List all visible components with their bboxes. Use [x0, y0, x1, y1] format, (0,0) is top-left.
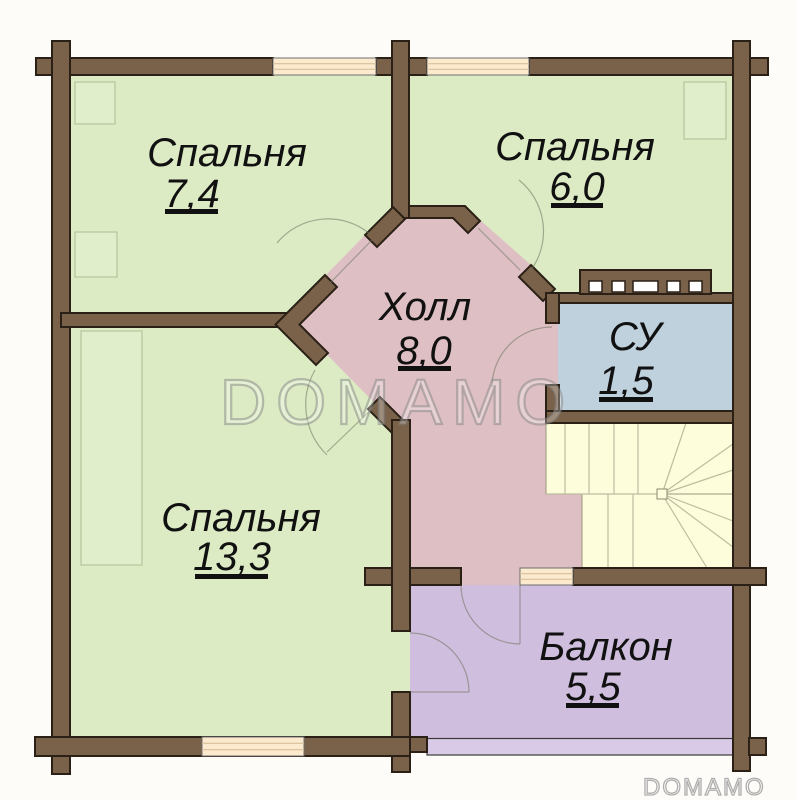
svg-text:DOMAMO: DOMAMO	[220, 366, 575, 438]
svg-text:DOMAMO: DOMAMO	[643, 774, 766, 800]
svg-text:1,5: 1,5	[598, 359, 654, 403]
svg-text:6,0: 6,0	[549, 165, 605, 209]
svg-text:13,3: 13,3	[193, 535, 271, 579]
svg-text:Холл: Холл	[378, 285, 471, 329]
svg-text:СУ: СУ	[609, 315, 665, 359]
svg-text:Балкон: Балкон	[539, 625, 673, 669]
svg-text:Спальня: Спальня	[495, 125, 655, 169]
svg-text:Спальня: Спальня	[147, 131, 307, 175]
svg-text:5,5: 5,5	[565, 665, 621, 709]
svg-text:Спальня: Спальня	[161, 496, 321, 540]
